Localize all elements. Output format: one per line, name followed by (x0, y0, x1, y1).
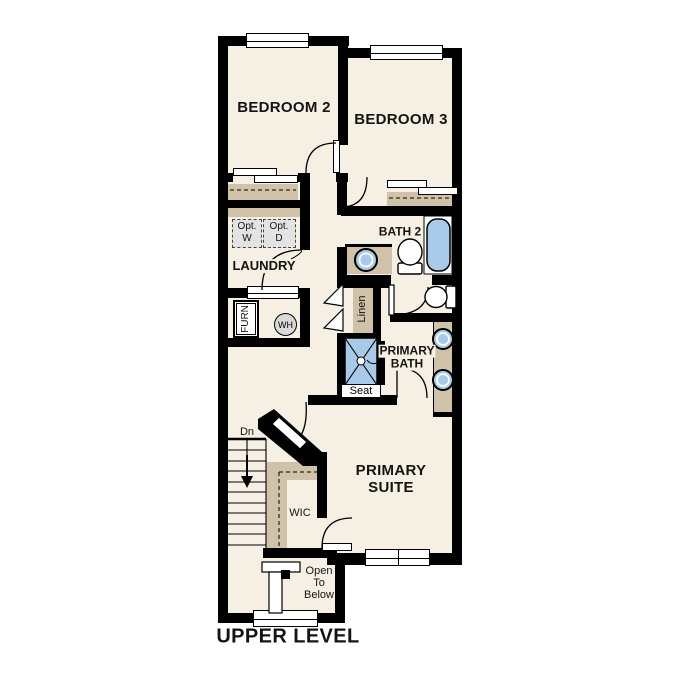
wall-shower-top (337, 333, 381, 341)
bedroom3-closet-bypass-door-b (418, 187, 458, 195)
window-primary-suite (365, 549, 430, 566)
window-mullion (254, 619, 317, 620)
room-label-primary-bath-line2: BATH (390, 358, 424, 371)
wall-wc-bottom (390, 313, 462, 322)
shower-seat-box: Seat (341, 384, 381, 398)
wall-bedroom2-bottom-a (218, 173, 233, 182)
opt-dryer-label-line1: Opt. (270, 222, 289, 233)
room-label-primary-bath-line1: PRIMARY (379, 345, 436, 358)
wall-utility-bottom (218, 338, 310, 347)
window-mullion (371, 53, 442, 54)
utility-closet-doors (247, 286, 299, 299)
primary-bath-vanity (433, 322, 452, 412)
window-stair-bay (253, 610, 318, 627)
stairs-dn-label: Dn (240, 427, 254, 439)
furnace-label: FURN (241, 305, 252, 333)
wall-bath2-bottom-b (432, 275, 462, 285)
wall-bedroom2-bottom-c (336, 173, 348, 182)
room-label-bedroom2: BEDROOM 2 (237, 100, 331, 116)
bath2-counter (345, 247, 392, 274)
water-heater-circle: WH (274, 313, 297, 336)
door-line (248, 293, 298, 294)
bedroom2-door-leaf (333, 140, 340, 173)
window-bedroom2 (246, 33, 309, 48)
open-to-below-line1: Open (306, 566, 333, 578)
wall-suite-bottom-b (429, 553, 462, 565)
shower-seat-label: Seat (350, 385, 373, 397)
window-mullion (247, 41, 308, 42)
bedroom2-closet-bypass-door-b (254, 175, 298, 183)
wall-vanity-stub (433, 412, 453, 417)
room-label-primary-suite-line1: PRIMARY (356, 463, 427, 479)
wall-utility-top-a (218, 288, 248, 298)
wic-shelf-top (266, 462, 322, 480)
wall-bath2-top (341, 206, 462, 216)
opt-washer-label-line1: Opt. (238, 222, 257, 233)
water-heater-label: WH (278, 320, 293, 330)
room-label-primary-suite-line2: SUITE (368, 480, 414, 496)
wall-laundry-top (218, 200, 310, 208)
wall-linen-top (337, 280, 390, 288)
wall-utility-top-b (298, 288, 310, 298)
wall-wic-right (317, 452, 327, 518)
wall-left (218, 36, 228, 623)
wall-bedroom-divider (338, 46, 348, 145)
wall-right (452, 48, 462, 565)
open-to-below-line2: To (313, 578, 325, 590)
room-label-bath2: BATH 2 (379, 226, 421, 239)
room-label-linen: Linen (357, 296, 369, 323)
wic-shelf-left (266, 480, 287, 548)
open-to-below-line3: Below (304, 590, 334, 602)
opt-washer-label-line2: W (242, 234, 251, 245)
room-label-laundry: LAUNDRY (231, 259, 296, 273)
bath2-counter-edge (345, 244, 392, 247)
wall-linen-right (373, 280, 381, 341)
opt-dryer-label-line2: D (275, 234, 282, 245)
room-label-wic: WIC (289, 508, 310, 520)
page-title: UPPER LEVEL (216, 627, 359, 648)
window-divider (398, 550, 399, 565)
window-bedroom3 (370, 45, 443, 60)
wall-suite-bottom-a (327, 553, 366, 565)
floor-plan-canvas: WH Seat BEDROOM 2 BEDROOM 3 BATH 2 LAUND… (0, 0, 687, 687)
wic-door-leaf (322, 543, 352, 551)
room-label-bedroom3: BEDROOM 3 (354, 112, 448, 128)
wall-hall-left-upper (300, 173, 310, 250)
